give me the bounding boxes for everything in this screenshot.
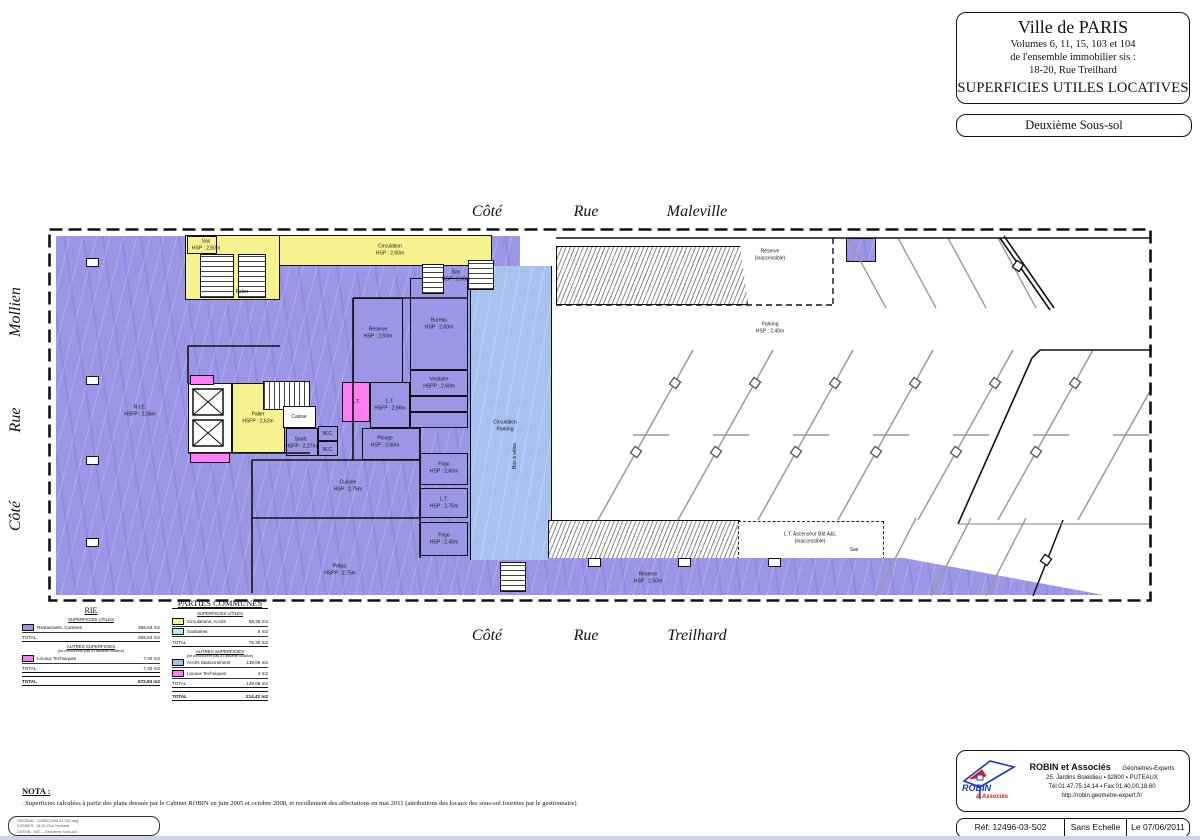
logo-wordmark-associes: & Associés xyxy=(976,794,1008,800)
legend-rie-table: RIE SUPERFICIES UTILES Restaurants, Cuis… xyxy=(22,606,160,686)
room-wc1 xyxy=(318,426,338,441)
legend-row: Locaux Techniques 7,40 m2 xyxy=(22,655,160,664)
swatch-acces-stationnement xyxy=(172,659,184,666)
room-wc-block-a xyxy=(410,396,468,412)
street-bottom-cote: Côté xyxy=(472,627,502,645)
legend-grand-total: TOTAL214,42 m2 xyxy=(172,691,268,701)
room-frigo-2 xyxy=(420,522,468,556)
firm-web[interactable]: http://robin.geometre-expert.fr/ xyxy=(1018,792,1186,801)
title-ensemble: de l'ensemble immobilier sis : xyxy=(957,51,1189,64)
zone-sas-topright xyxy=(846,238,876,262)
title-volumes: Volumes 6, 11, 15, 103 et 104 xyxy=(957,38,1189,51)
legend-row: Circulations, Accès 69,36 m2 xyxy=(172,618,268,627)
room-lt-3 xyxy=(420,488,468,518)
page-bottom-edge xyxy=(0,836,1200,840)
swatch-sanitaires xyxy=(172,628,184,635)
legend-row-label: Locaux Techniques xyxy=(187,671,255,676)
nota-title: NOTA : xyxy=(22,786,50,796)
swatch-locaux-techniques xyxy=(22,655,34,662)
drawing-sheet: Ville de PARIS Volumes 6, 11, 15, 103 et… xyxy=(0,0,1200,840)
street-top-maleville: Maleville xyxy=(667,203,727,221)
column xyxy=(768,558,781,567)
ramp-top xyxy=(556,246,748,305)
room-caisse xyxy=(283,406,316,428)
room-label: Réserve (inaccessible) xyxy=(755,249,786,262)
firm-phone: Tél:01.47.75.14.14 ▪ Fax:01.40.00.18.60 xyxy=(1018,783,1186,792)
room-reserve xyxy=(353,298,403,383)
room-lt-pink xyxy=(342,382,370,422)
legend-row-value: 4 m2 xyxy=(258,671,268,676)
legend-parties-communes-table: PARTIES COMMUNES SUPERFICIES UTILES Circ… xyxy=(172,598,268,701)
firm-box: ROBIN & Associés ROBIN et Associés Géomè… xyxy=(956,750,1190,812)
legend-section-subheader: (ne concourent pas à l'assiette locative… xyxy=(22,649,160,653)
legend-section-header: SUPERFICIES UTILES xyxy=(172,611,268,616)
legend-row-value: 69,36 m2 xyxy=(249,619,268,624)
title-address: 18-20, Rue Treilhard xyxy=(957,64,1189,77)
room-wc2 xyxy=(318,441,338,456)
level-title: Deuxième Sous-sol xyxy=(956,114,1192,137)
room-frigo-1 xyxy=(420,453,468,485)
legend-row-value: 7,40 m2 xyxy=(143,656,160,661)
zone-circulation-top xyxy=(278,235,492,266)
legend-row-label: Locaux Techniques xyxy=(37,656,140,661)
legend-rie-title: RIE xyxy=(22,606,160,615)
file-info-box: ORIGINAL : 12496\12496-03-S02.dwg DOSSIE… xyxy=(8,816,160,836)
street-left-mollien: Mollien xyxy=(7,287,25,337)
room-vestiaire xyxy=(410,370,468,396)
stairs-topleft-2 xyxy=(238,254,266,298)
legend-total: TOTAL139,06 m2 xyxy=(172,680,268,688)
room-lt-sliver-bottom xyxy=(190,452,230,463)
page-title: Ville de PARIS xyxy=(957,17,1189,38)
stairs-top-middle xyxy=(422,264,444,294)
logo-wordmark-robin: ROBIN xyxy=(962,783,991,793)
stairs-parking-top xyxy=(468,260,494,290)
column xyxy=(678,558,691,567)
column xyxy=(588,558,601,567)
ramp-bottom xyxy=(548,520,740,560)
room-lt-main xyxy=(370,382,410,428)
title-main: SUPERFICIES UTILES LOCATIVES xyxy=(957,80,1189,97)
street-bottom-rue: Rue xyxy=(574,627,599,645)
zone-reserve-bottom xyxy=(548,558,1104,595)
column xyxy=(86,456,99,465)
zone-circulation-parking xyxy=(470,266,552,560)
legend-row-label: Sanitaires xyxy=(187,629,255,634)
date-label: Le 07/06/2011 xyxy=(1127,819,1189,837)
floor-plan: Sas HSP : 2,50mCirculation HSP : 2,60mPa… xyxy=(48,228,1152,604)
nota-text: . Superficies calculées à partir des pla… xyxy=(22,800,662,807)
swatch-restaurants xyxy=(22,624,34,631)
room-lt-sliver-top xyxy=(190,375,214,385)
legend-total: TOTAL7,40 m2 xyxy=(22,665,160,673)
legend-row: Restaurants, Cuisines 665,53 m2 xyxy=(22,624,160,633)
firm-name: ROBIN et Associés xyxy=(1030,761,1111,775)
legend-row: Accès Stationnement 135,06 m2 xyxy=(172,659,268,668)
legend-total: TOTAL75,36 m2 xyxy=(172,639,268,647)
legend-grand-total: TOTAL672,93 m2 xyxy=(22,676,160,686)
robin-logo: ROBIN & Associés xyxy=(960,755,1018,807)
legend-row-value: 6 m2 xyxy=(258,629,268,634)
legend-row-value: 135,06 m2 xyxy=(246,660,268,665)
firm-info: ROBIN et Associés Géomètres-Experts 25, … xyxy=(1018,761,1186,802)
street-left-rue: Rue xyxy=(7,408,25,433)
stairs-topleft-1 xyxy=(200,254,234,298)
reference-number: Réf: 12496-03-S02 xyxy=(957,819,1065,837)
room-label: Parking HSP : 2,40m xyxy=(756,322,784,335)
legend-row: Sanitaires 6 m2 xyxy=(172,628,268,637)
firm-role: Géomètres-Experts xyxy=(1122,765,1174,774)
legend-total: TOTAL665,53 m2 xyxy=(22,634,160,642)
swatch-locaux-techniques-pc xyxy=(172,670,184,677)
elevator-shafts xyxy=(192,388,228,448)
legend-section-subheader: (ne concourent pas à l'assiette locative… xyxy=(172,654,268,658)
file-info-line: DESSIN : S02 — Deuxième Sous-sol xyxy=(17,830,151,835)
lt-ascenseur-box xyxy=(738,521,884,560)
swatch-circulations xyxy=(172,618,184,625)
room-sanit xyxy=(286,428,318,456)
street-top-rue: Rue xyxy=(574,203,599,221)
legend-row-value: 665,53 m2 xyxy=(138,625,160,630)
scale-label: Sans Echelle xyxy=(1065,819,1127,837)
legend-row-label: Accès Stationnement xyxy=(187,660,243,665)
legend-row-label: Restaurants, Cuisines xyxy=(37,625,135,630)
column xyxy=(86,258,99,267)
street-bottom-treilhard: Treilhard xyxy=(667,627,726,645)
stairs-parking-bottom xyxy=(500,562,526,592)
street-left-cote: Côté xyxy=(7,501,25,531)
legend-row: Locaux Techniques 4 m2 xyxy=(172,670,268,679)
room-sas-topleft xyxy=(187,236,217,254)
room-plonge xyxy=(362,428,420,460)
room-wc-block-b xyxy=(410,412,468,428)
legend-section-header: SUPERFICIES UTILES xyxy=(22,617,160,622)
title-block: Ville de PARIS Volumes 6, 11, 15, 103 et… xyxy=(956,12,1190,104)
legend-pc-title: PARTIES COMMUNES xyxy=(172,598,268,609)
firm-address: 25, Jardins Boieldieu ▪ 92800 ▪ PUTEAUX xyxy=(1018,774,1186,783)
legend-row-label: Circulations, Accès xyxy=(187,619,246,624)
reference-bar: Réf: 12496-03-S02 Sans Echelle Le 07/06/… xyxy=(956,818,1190,838)
column xyxy=(86,538,99,547)
street-top-cote: Côté xyxy=(472,203,502,221)
column xyxy=(86,376,99,385)
